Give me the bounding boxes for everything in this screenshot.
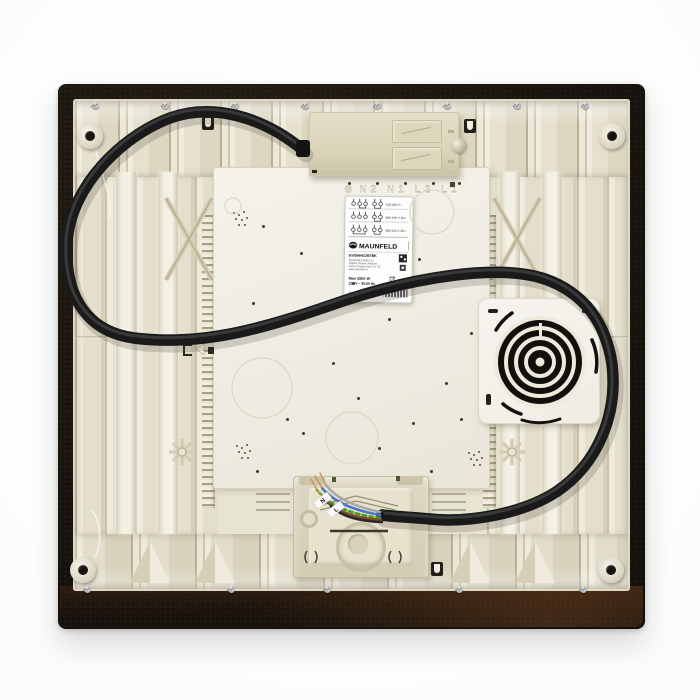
plate-screw-hole xyxy=(460,418,463,421)
screw xyxy=(84,586,91,593)
mounting-boss xyxy=(77,123,103,149)
ce-mark: CE xyxy=(398,279,406,285)
screw xyxy=(374,102,381,109)
mounting-boss xyxy=(599,123,625,149)
knockout-centre xyxy=(348,534,368,554)
vent-hole xyxy=(241,457,243,459)
brand-wordmark: MAUNFELD xyxy=(359,243,397,251)
screw xyxy=(232,102,239,109)
wiring-voltage-2: 380-415 V 2N~ xyxy=(385,216,406,220)
model-number: EVI594HZ2BTBK xyxy=(349,254,377,258)
screw xyxy=(582,102,589,109)
plate-screw-hole xyxy=(404,182,407,185)
plate-screw-hole xyxy=(286,418,289,421)
screw-boss xyxy=(300,510,318,528)
strain-tab xyxy=(397,476,423,485)
vent-hole xyxy=(247,457,249,459)
rating-label-graphic: 220-240 V~ 380-415 V 2N~ 380-415 V 3N~ M… xyxy=(343,196,413,304)
vent-hole xyxy=(246,444,248,446)
strain-tab xyxy=(299,476,325,485)
vent-hole xyxy=(249,450,251,452)
plate-screw-hole xyxy=(376,182,379,185)
glass-bottom-tint xyxy=(60,586,643,627)
wiring-voltage-3: 380-415 V 3N~ xyxy=(385,229,406,233)
vent-slot xyxy=(486,394,491,405)
vent-hole xyxy=(473,464,475,466)
plate-screw-hole xyxy=(388,318,391,321)
serial-origin-line: S/N 2105000000 Made in China xyxy=(348,292,383,295)
ground-symbol-icon: ⊕ xyxy=(344,185,353,196)
vent-hole xyxy=(473,454,475,456)
screw xyxy=(514,102,521,109)
plate-screw-hole xyxy=(430,470,433,473)
vent-hole xyxy=(241,447,243,449)
vent-hole xyxy=(481,457,483,459)
cable-clip xyxy=(464,119,476,133)
cable-clip xyxy=(431,562,443,576)
plate-screw-hole xyxy=(262,225,265,228)
vent-hole xyxy=(478,451,480,453)
vent-hole xyxy=(246,217,248,219)
mounting-boss xyxy=(598,557,624,583)
cover-latch xyxy=(451,138,466,153)
plate-screw-hole xyxy=(332,362,335,365)
vent-hole xyxy=(238,224,240,226)
barcode xyxy=(383,289,407,297)
cable-clip xyxy=(208,562,220,576)
rib-column-left xyxy=(75,177,218,534)
max-power: Max 6500 W xyxy=(349,277,371,281)
vent-hole xyxy=(479,464,481,466)
vent-hole xyxy=(236,445,238,447)
rating-label: 220-240 V~ 380-415 V 2N~ 380-415 V 3N~ M… xyxy=(343,196,413,304)
vent-hole xyxy=(468,452,470,454)
plate-screw-hole xyxy=(302,432,305,435)
fan-hub xyxy=(536,358,545,367)
vent-hole xyxy=(241,219,243,221)
vent-hole xyxy=(233,212,235,214)
vent-slot xyxy=(582,309,592,313)
screw xyxy=(228,586,235,593)
screw xyxy=(444,102,451,109)
screw xyxy=(162,102,169,109)
cooling-fan-housing xyxy=(478,298,600,424)
wiring-voltage-1: 220-240 V~ xyxy=(386,203,402,207)
screw xyxy=(580,586,587,593)
screw xyxy=(302,102,309,109)
vent-hole xyxy=(235,218,237,220)
embossed-arrow-panel xyxy=(392,120,442,143)
terminal-letters: N2 N1 L2 L1 xyxy=(359,185,460,196)
mains-terminal-cover xyxy=(309,112,459,176)
plate-screw-hole xyxy=(470,332,473,335)
embossed-arrow-panel xyxy=(392,147,442,170)
plate-screw-hole xyxy=(348,182,351,185)
maker-line: www.maunfeld.ru xyxy=(349,268,369,271)
plate-screw-hole xyxy=(300,252,303,255)
plate-screw-hole xyxy=(445,382,448,385)
raised-channel xyxy=(158,172,178,534)
product-photo-hob-underside: ⊕N2 N1 L2 L1 xyxy=(0,0,700,700)
vent-hole xyxy=(238,451,240,453)
vent-hole xyxy=(243,211,245,213)
mould-seam xyxy=(76,336,216,339)
plate-screw-hole xyxy=(256,470,259,473)
plate-screw-hole xyxy=(458,182,461,185)
screw xyxy=(92,102,99,109)
vent-hole xyxy=(244,224,246,226)
plate-screw-hole xyxy=(418,258,421,261)
screw xyxy=(324,586,331,593)
plate-screw-hole xyxy=(238,332,241,335)
plate-screw-hole xyxy=(357,397,360,400)
plate-screw-hole xyxy=(352,282,355,285)
vent-hole xyxy=(476,459,478,461)
plate-screw-hole xyxy=(412,422,415,425)
plate-screw-hole xyxy=(378,447,381,450)
vent-slot xyxy=(488,309,498,313)
plate-screw-hole xyxy=(252,302,255,305)
vent-hole xyxy=(238,214,240,216)
raised-channel xyxy=(116,172,136,534)
plate-screw-hole xyxy=(432,182,435,185)
screw xyxy=(456,586,463,593)
vent-hole xyxy=(470,458,472,460)
fan-grille xyxy=(494,316,586,408)
cable-clip xyxy=(202,116,214,130)
mounting-boss xyxy=(70,557,96,583)
vent-hole xyxy=(244,452,246,454)
